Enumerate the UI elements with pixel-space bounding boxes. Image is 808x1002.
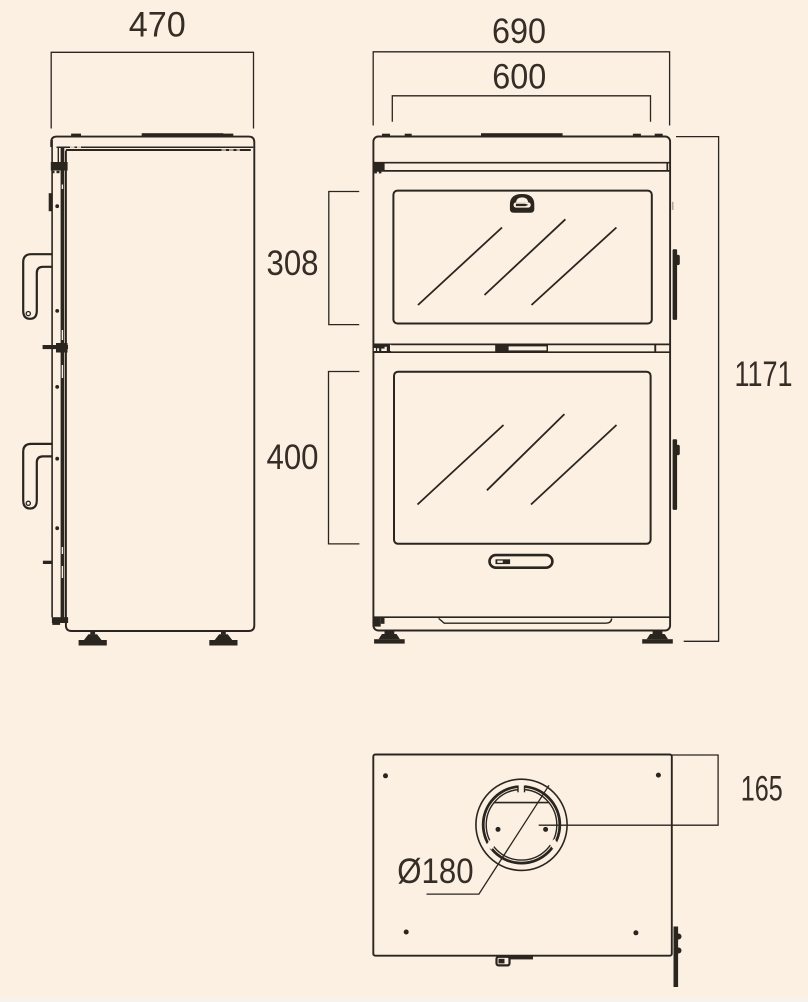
svg-text:690: 690: [492, 11, 546, 51]
svg-text:165: 165: [741, 769, 783, 809]
svg-text:400: 400: [267, 437, 319, 477]
svg-text:600: 600: [492, 57, 546, 97]
svg-text:Ø180: Ø180: [397, 851, 473, 891]
svg-text:1171: 1171: [735, 354, 793, 394]
svg-text:308: 308: [267, 243, 319, 283]
svg-text:470: 470: [129, 5, 186, 45]
